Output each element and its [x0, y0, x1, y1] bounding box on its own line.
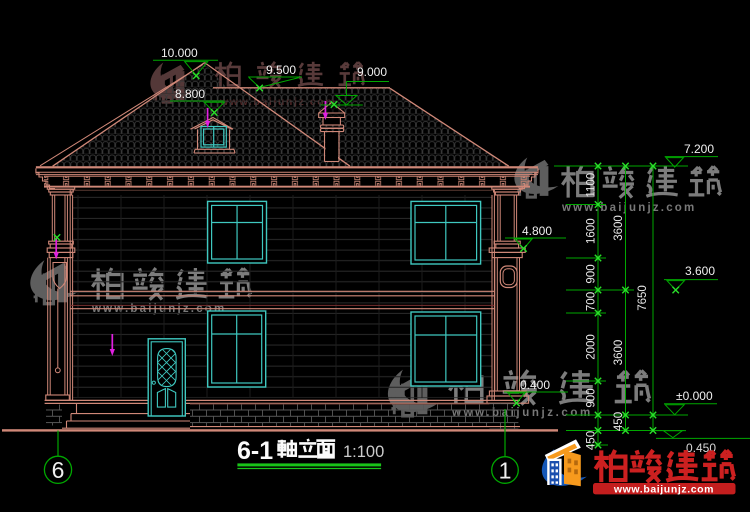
- svg-text:7.200: 7.200: [684, 142, 714, 156]
- svg-text:3.600: 3.600: [685, 264, 715, 278]
- svg-text:3600: 3600: [613, 340, 625, 366]
- svg-text:6-1: 6-1: [237, 437, 273, 465]
- svg-text:1600: 1600: [586, 218, 598, 244]
- svg-text:7650: 7650: [637, 285, 649, 311]
- svg-text:900: 900: [586, 388, 598, 407]
- svg-text:1: 1: [499, 458, 512, 484]
- svg-text:8.800: 8.800: [175, 87, 205, 101]
- svg-text:www.baijunjz.com: www.baijunjz.com: [613, 483, 714, 495]
- svg-text:1100: 1100: [586, 173, 598, 198]
- svg-text:±0.000: ±0.000: [676, 389, 713, 403]
- svg-text:3600: 3600: [613, 215, 625, 241]
- svg-text:www.baijunjz.com: www.baijunjz.com: [561, 202, 696, 214]
- svg-text:900: 900: [586, 264, 598, 283]
- svg-text:0.400: 0.400: [520, 378, 550, 392]
- svg-text:1:100: 1:100: [343, 443, 384, 461]
- svg-text:10.000: 10.000: [161, 46, 198, 60]
- svg-text:6: 6: [52, 457, 65, 483]
- svg-text:9.500: 9.500: [266, 63, 296, 77]
- svg-text:9.000: 9.000: [357, 65, 387, 79]
- svg-text:4.800: 4.800: [522, 224, 552, 238]
- svg-text:450: 450: [586, 431, 598, 450]
- svg-text:2000: 2000: [586, 334, 598, 360]
- svg-text:700: 700: [586, 292, 598, 311]
- svg-text:450: 450: [613, 412, 625, 431]
